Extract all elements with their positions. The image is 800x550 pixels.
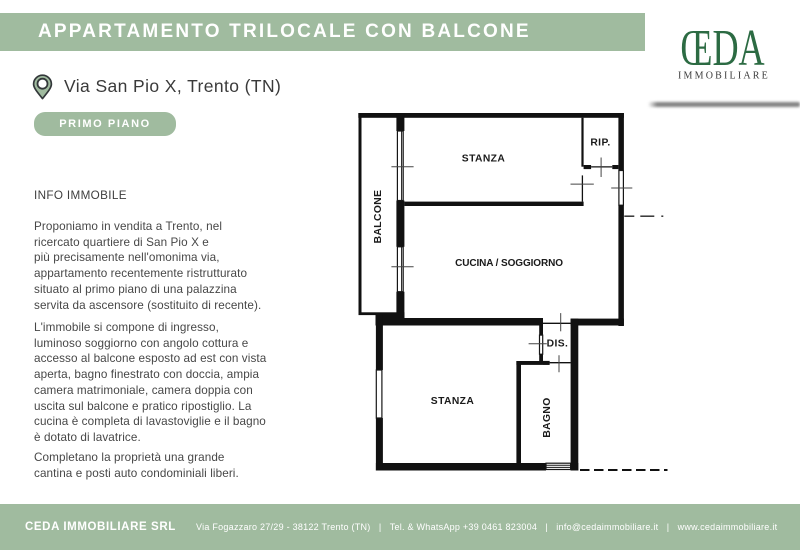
svg-text:DIS.: DIS. [547,339,569,350]
svg-text:CUCINA / SOGGIORNO: CUCINA / SOGGIORNO [455,258,563,269]
svg-text:BAGNO: BAGNO [542,397,553,437]
svg-text:BALCONE: BALCONE [373,190,384,244]
svg-text:STANZA: STANZA [462,153,506,164]
svg-text:STANZA: STANZA [431,396,475,407]
svg-text:RIP.: RIP. [590,138,610,149]
